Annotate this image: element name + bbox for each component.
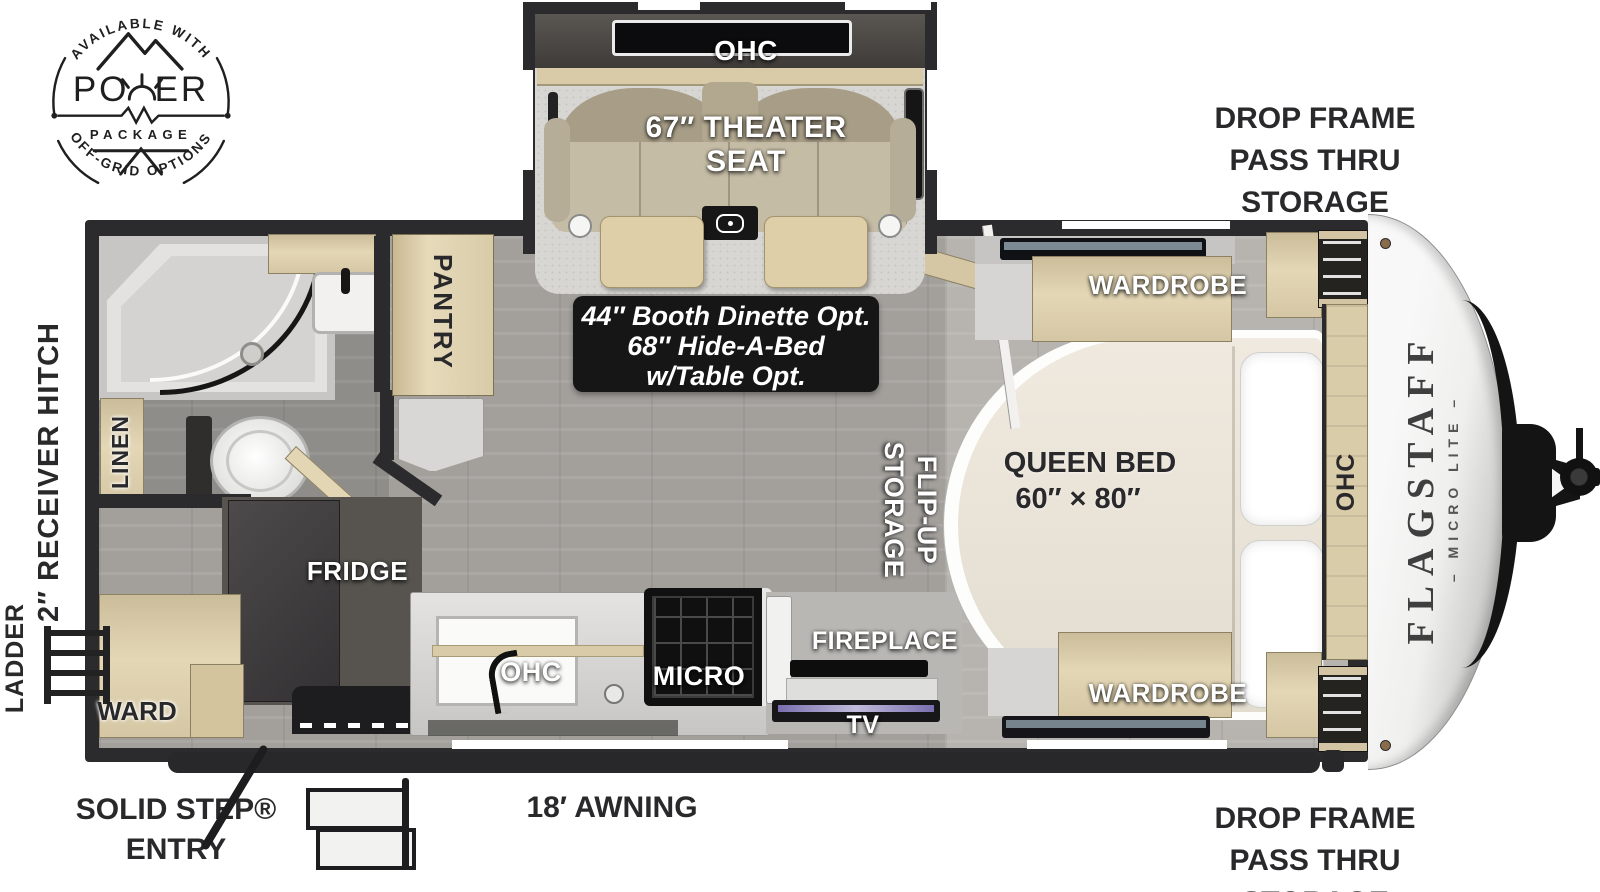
brand-wrap: FLAGSTAFF – MICRO LITE – — [1395, 298, 1465, 678]
bath-medicine-cabinet — [268, 234, 376, 274]
ladder-label: LADDER — [2, 603, 28, 713]
slide-side-window-left — [523, 70, 533, 170]
zigzag-divider — [57, 108, 225, 123]
rod-rack-top-rods — [1323, 241, 1361, 297]
bedroom-window-bottom — [1002, 716, 1210, 738]
footrest-table-right — [764, 216, 868, 288]
storage-bottom-line2: PASS THRU — [1195, 840, 1435, 882]
storage-top-line2: PASS THRU — [1195, 140, 1435, 182]
exterior-window-strip-kitchen — [452, 740, 788, 749]
shower-drain — [240, 342, 264, 366]
pantry-label: PANTRY — [428, 254, 455, 370]
counter-rail — [432, 645, 644, 657]
option-line-1: 44″ Booth Dinette Opt. — [573, 301, 879, 331]
divider-dot-left — [51, 113, 57, 119]
bedroom-panel-bottom-left — [988, 648, 1058, 716]
brand-name: FLAGSTAFF — [1399, 331, 1443, 644]
fridge-label: FRIDGE — [295, 558, 420, 588]
entry-mat-dashes — [300, 723, 424, 728]
slide-ohc-label: OHC — [689, 36, 803, 66]
badge-power-left: PO — [73, 70, 129, 109]
rod-rack-bottom-cap1 — [1319, 667, 1367, 675]
brand-sub: – MICRO LITE – — [1445, 331, 1461, 644]
ladder-icon — [44, 626, 110, 704]
badge-arc-top: AVAILABLE WITH — [68, 16, 215, 62]
dinette-option-box: 44″ Booth Dinette Opt. 68″ Hide-A-Bed w/… — [573, 296, 879, 392]
seat-console — [702, 206, 758, 240]
bedroom-ohc-label-wrap: OHC — [1326, 422, 1366, 542]
micro-label: MICRO — [644, 662, 754, 692]
storage-bottom-line1: DROP FRAME — [1195, 798, 1435, 840]
jack-post — [1576, 428, 1583, 462]
bedroom-window-top-glass — [1004, 242, 1202, 250]
entry-step-1 — [306, 788, 406, 830]
solid-step-callout: SOLID STEP® ENTRY — [61, 790, 291, 870]
theater-seat-label-1: 67″ THEATER — [620, 112, 872, 144]
theater-seat-armrest-left — [544, 118, 570, 222]
cupholder-dot — [728, 221, 733, 226]
nightstand-top — [1266, 232, 1322, 318]
slide-side-window-right — [927, 70, 937, 170]
nightstand-bottom — [1266, 652, 1322, 738]
theater-seat-armrest-right — [890, 118, 916, 222]
rod-rack-top-cap1 — [1319, 231, 1367, 239]
slide-window-strip-right — [845, 2, 931, 10]
flip-up-line1: FLIP-UP — [910, 442, 943, 579]
propane-cover — [1502, 424, 1556, 542]
hitch-coupler — [1592, 468, 1600, 486]
cap-screw-bottom — [1380, 740, 1391, 751]
badge-package: PACKAGE — [90, 127, 192, 142]
exterior-window-strip-bedroom — [1027, 740, 1227, 749]
cap-screw-top — [1380, 238, 1391, 249]
rod-rack-bottom-rods — [1323, 677, 1361, 741]
svg-text:AVAILABLE WITH: AVAILABLE WITH — [68, 16, 215, 62]
flip-up-line2: STORAGE — [877, 442, 910, 579]
sink-knob — [604, 684, 624, 704]
wardrobe-top-label: WARDROBE — [1068, 272, 1268, 300]
hanging-rod-rack-top — [1318, 230, 1368, 308]
toilet-seat-ring — [226, 430, 294, 492]
bath-wall-right — [374, 236, 390, 392]
storage-callout-top: DROP FRAME PASS THRU STORAGE — [1195, 98, 1435, 224]
cupholder-icon — [716, 214, 744, 233]
power-package-badge: PO ER PACKAGE AVAILABLE WITH OFF-GRID OP… — [28, 4, 254, 202]
fireplace-label: FIREPLACE — [795, 628, 975, 658]
counter-edge-shadow — [428, 720, 678, 736]
ladder-rungs — [51, 630, 103, 700]
receiver-hitch-label: 2″ RECEIVER HITCH — [34, 322, 64, 622]
storage-callout-bottom: DROP FRAME PASS THRU STORAGE — [1195, 798, 1435, 892]
cupholder-right — [878, 214, 902, 238]
footrest-table-left — [600, 216, 704, 288]
storage-bottom-line3: STORAGE — [1195, 882, 1435, 892]
theater-seat-label-2: SEAT — [620, 146, 872, 178]
bath-faucet — [341, 268, 350, 294]
divider-dot-right — [225, 113, 231, 119]
kitchen-ohc-label: OHC — [491, 658, 571, 688]
linen-label: LINEN — [108, 415, 132, 489]
pantry-label-wrap: PANTRY — [422, 232, 462, 392]
fridge — [228, 500, 340, 702]
wardrobe-bottom-label: WARDROBE — [1068, 680, 1268, 708]
entry-step-2 — [316, 828, 416, 870]
storage-top-line3: STORAGE — [1195, 182, 1435, 224]
hanging-rod-rack-bottom — [1318, 666, 1368, 752]
storage-top-line1: DROP FRAME — [1195, 98, 1435, 140]
option-line-3: w/Table Opt. — [573, 361, 879, 391]
awning-label: 18′ AWNING — [512, 792, 712, 824]
awning-rail — [168, 752, 1320, 773]
fireplace — [790, 660, 928, 677]
ladder-label-wrap: LADDER — [0, 578, 37, 738]
bedroom-window-bottom-glass — [1006, 720, 1206, 728]
flip-up-storage-wrap: FLIP-UP STORAGE — [830, 425, 990, 595]
option-line-2: 68″ Hide-A-Bed — [573, 331, 879, 361]
floorplan-canvas: PO ER PACKAGE AVAILABLE WITH OFF-GRID OP… — [0, 0, 1600, 892]
badge-power-right: ER — [155, 70, 210, 109]
bedroom-panel-top-left — [975, 264, 1035, 340]
bed-seam — [1232, 346, 1235, 706]
queen-bed-size: 60″ × 80″ — [978, 484, 1178, 516]
solid-step-line2: ENTRY — [61, 830, 291, 870]
solid-step-line1: SOLID STEP® — [61, 790, 291, 830]
media-shelf — [786, 678, 938, 702]
mountains-icon — [98, 34, 182, 69]
slide-window-strip-left — [638, 2, 700, 10]
pillow-top — [1240, 352, 1324, 526]
bedroom-ohc-label: OHC — [1333, 453, 1359, 512]
cupholder-left — [568, 214, 592, 238]
wall-stub-pantry — [380, 390, 394, 460]
queen-bed-label: QUEEN BED — [990, 448, 1190, 480]
step-rail-right — [402, 778, 409, 870]
toilet-tank — [186, 416, 212, 500]
awning-rail-hinge — [1322, 750, 1344, 772]
tv-label: TV — [833, 712, 893, 740]
ward-cabinet-step — [190, 664, 244, 738]
